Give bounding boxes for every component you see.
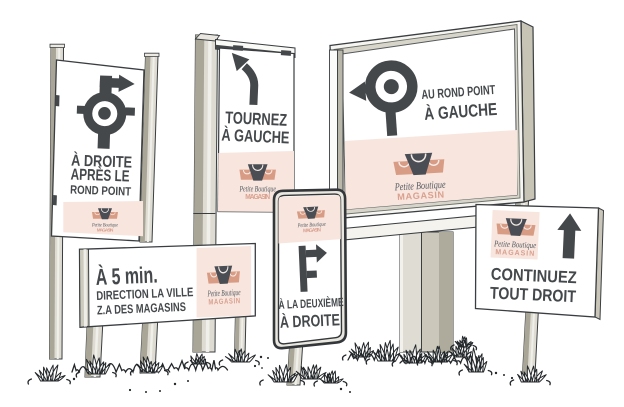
svg-text:À GAUCHE: À GAUCHE <box>221 126 290 148</box>
svg-text:MAGASIN: MAGASIN <box>208 298 240 307</box>
svg-text:MAGASIN: MAGASIN <box>245 194 270 201</box>
svg-text:À LA DEUXIÈME: À LA DEUXIÈME <box>278 294 344 312</box>
svg-text:MAGASIN: MAGASIN <box>303 227 322 234</box>
svg-text:Petite Boutique: Petite Boutique <box>239 184 277 193</box>
svg-text:MAGASIN: MAGASIN <box>97 227 114 232</box>
svg-text:TOUT DROIT: TOUT DROIT <box>490 283 577 306</box>
svg-text:ROND POINT: ROND POINT <box>70 182 132 198</box>
svg-text:À DROITE: À DROITE <box>279 310 340 332</box>
svg-text:À 5 min.: À 5 min. <box>95 261 158 290</box>
